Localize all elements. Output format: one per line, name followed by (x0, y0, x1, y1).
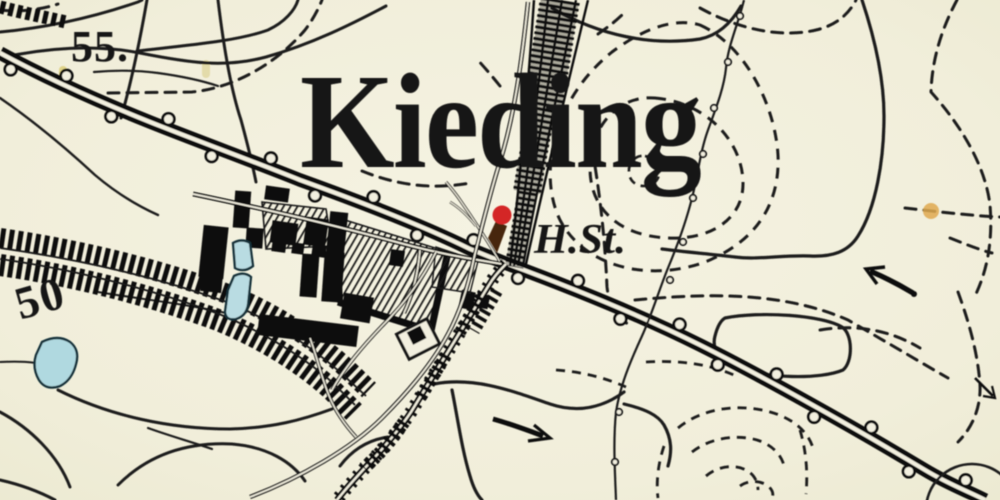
svg-text:H.St.: H.St. (533, 217, 626, 263)
svg-text:Kieding: Kieding (300, 47, 701, 197)
svg-text:55.: 55. (71, 22, 129, 71)
